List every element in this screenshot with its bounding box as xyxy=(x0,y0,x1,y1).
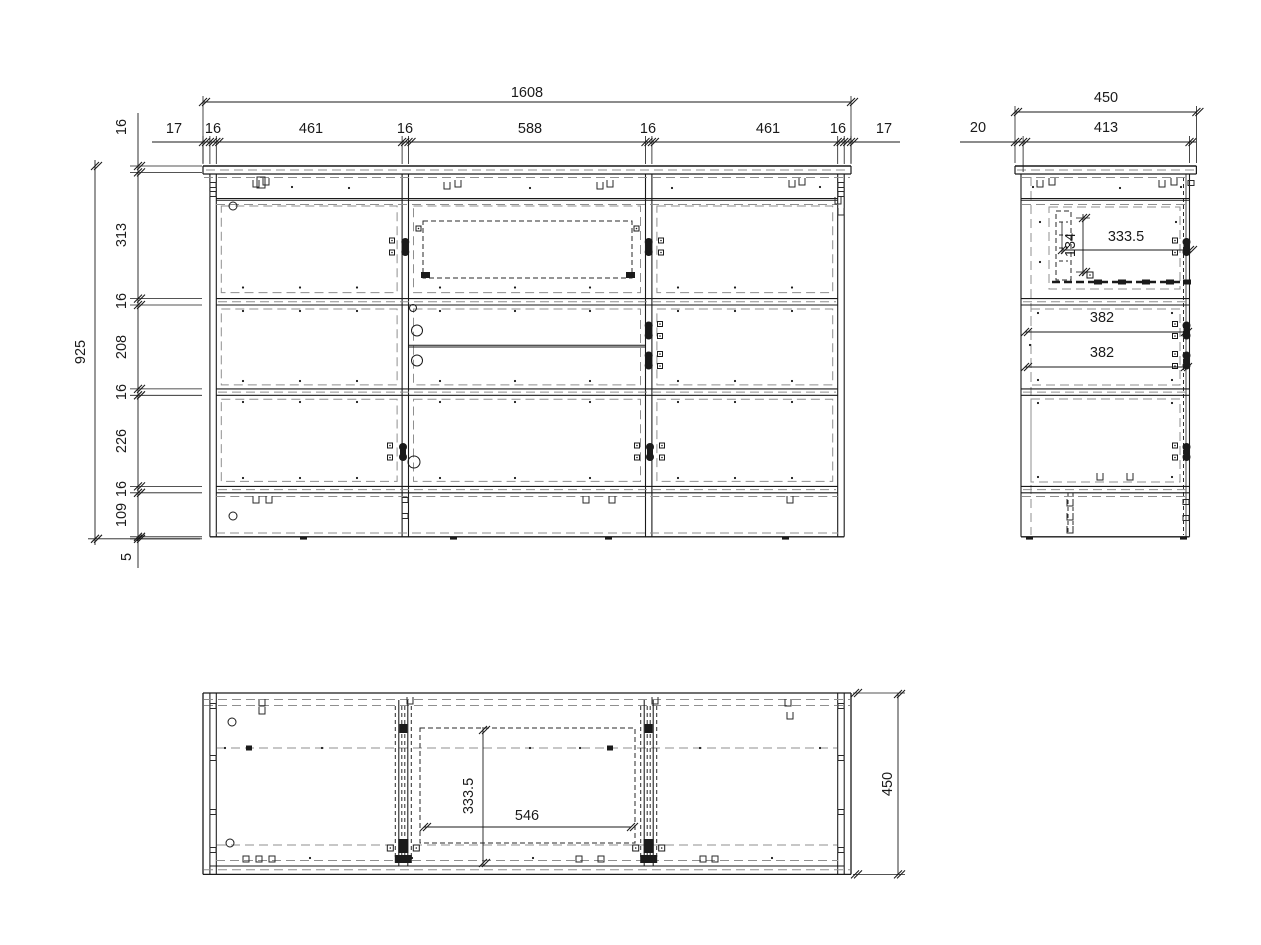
door-outline xyxy=(221,206,397,293)
dim-label-divider-left: 16 xyxy=(397,121,413,137)
fitting-dot xyxy=(391,252,393,254)
fitting-dot xyxy=(390,847,392,849)
dowel-dot xyxy=(299,310,301,312)
dowel-dot xyxy=(514,380,516,382)
runner-block xyxy=(246,746,252,751)
hinge-icon xyxy=(635,443,665,461)
clip-icon xyxy=(607,180,613,187)
cam-icon xyxy=(402,514,408,519)
dowel-dot xyxy=(309,857,311,859)
door-outline xyxy=(1031,399,1180,482)
hinge-cup xyxy=(401,248,409,256)
front-fitting xyxy=(243,856,249,862)
hinge-cup xyxy=(399,443,407,451)
hinge-cup xyxy=(1183,322,1191,330)
hardware xyxy=(421,272,430,278)
hinge-cup xyxy=(401,238,409,246)
dowel-dot xyxy=(529,187,531,189)
dowel-dot xyxy=(771,857,773,859)
door-outline xyxy=(414,399,641,481)
foot xyxy=(782,537,789,540)
hinge-cup xyxy=(645,332,653,340)
clip-icon xyxy=(597,182,603,189)
dowel-dot xyxy=(589,286,591,288)
dowel-dot xyxy=(699,747,701,749)
door-outline xyxy=(221,399,397,481)
dim-label-overall-depth: 450 xyxy=(1094,90,1118,106)
dim-label-row3-height: 226 xyxy=(114,429,130,453)
cam-icon xyxy=(210,848,216,853)
dowel-dot xyxy=(1171,312,1173,314)
hinge-icon xyxy=(645,238,664,256)
dowel-dot xyxy=(439,401,441,403)
clip-icon xyxy=(787,496,793,503)
clip-icon xyxy=(799,178,805,185)
dowel-dot xyxy=(589,380,591,382)
dim-label-bay-left: 461 xyxy=(299,121,323,137)
fitting-dot xyxy=(661,847,663,849)
dim-label-drawer-depth: 333.5 xyxy=(461,778,477,814)
fitting-dot xyxy=(635,847,637,849)
fitting-dot xyxy=(1089,274,1091,276)
dim-label-panel-right: 16 xyxy=(830,121,846,137)
hinge-cup xyxy=(645,352,653,360)
front-fitting xyxy=(256,856,262,862)
clip-icon xyxy=(266,496,272,503)
clip-icon xyxy=(838,208,844,215)
door-outline xyxy=(657,206,833,293)
clip-icon xyxy=(1097,473,1103,480)
cam-icon xyxy=(210,192,216,197)
hinge-icon xyxy=(645,352,663,370)
inner-drawer-outline xyxy=(420,728,635,843)
dowel-dot xyxy=(1037,379,1039,381)
bottom-view xyxy=(203,693,851,874)
clip-icon xyxy=(1049,178,1055,185)
hinge-cup xyxy=(1183,352,1191,360)
front-view xyxy=(203,166,851,540)
dim-label-plinth-height: 109 xyxy=(114,503,130,527)
dowel-dot xyxy=(529,747,531,749)
clip-icon xyxy=(787,712,793,719)
hinge-icon xyxy=(1173,443,1191,461)
dowel-dot xyxy=(242,310,244,312)
hinge-plate xyxy=(640,855,657,863)
dim-label-runner-bottom: 382 xyxy=(1090,345,1114,361)
dowel-dot xyxy=(299,286,301,288)
dowel-dot xyxy=(356,477,358,479)
clip-icon xyxy=(1127,473,1133,480)
hinge-plate xyxy=(395,855,412,863)
dowel-dot xyxy=(1029,344,1031,346)
fitting-dot xyxy=(636,228,638,230)
fitting-dot xyxy=(660,240,662,242)
fitting-dot xyxy=(661,457,663,459)
door-outline xyxy=(221,309,397,385)
dowel-dot xyxy=(677,401,679,403)
knob-circle xyxy=(228,718,236,726)
clip-icon xyxy=(1037,180,1043,187)
cam-icon xyxy=(210,756,216,761)
fitting-dot xyxy=(1174,445,1176,447)
dim-label-overall-depth: 450 xyxy=(880,772,896,796)
dowel-dot xyxy=(299,401,301,403)
clip-icon xyxy=(263,178,269,185)
dowel-dot xyxy=(677,477,679,479)
cad-drawing: 1608171646116588164611617169253131620816… xyxy=(0,0,1261,945)
fitting-dot xyxy=(661,445,663,447)
dowel-dot xyxy=(356,286,358,288)
dim-label-divider-right: 16 xyxy=(640,121,656,137)
hinge-icon xyxy=(390,238,410,256)
dowel-dot xyxy=(589,477,591,479)
hinge-icon xyxy=(1173,322,1191,340)
fitting-dot xyxy=(636,445,638,447)
dim-label-body-depth: 413 xyxy=(1094,120,1118,136)
clip-icon xyxy=(1171,178,1177,185)
cam-icon xyxy=(402,498,408,503)
dowel-dot xyxy=(1037,476,1039,478)
hardware xyxy=(626,272,635,278)
hinge-icon xyxy=(1173,238,1191,256)
runner-block xyxy=(1094,280,1102,285)
dowel-dot xyxy=(532,857,534,859)
door-outline xyxy=(657,399,833,481)
clip-icon xyxy=(455,180,461,187)
dim-label-overall-height: 925 xyxy=(73,340,89,364)
dowel-dot xyxy=(589,401,591,403)
dim-label-top-thickness: 16 xyxy=(114,119,130,135)
fitting-dot xyxy=(1174,252,1176,254)
dowel-dot xyxy=(1175,221,1177,223)
hinge-icon xyxy=(645,322,663,340)
dowel-dot xyxy=(242,477,244,479)
dowel-dot xyxy=(439,477,441,479)
dowel-dot xyxy=(791,380,793,382)
foot xyxy=(450,537,457,540)
dowel-dot xyxy=(677,310,679,312)
fitting-dot xyxy=(659,365,661,367)
fitting-block xyxy=(645,724,653,733)
fitting-dot xyxy=(389,457,391,459)
dowel-dot xyxy=(411,857,413,859)
cam-icon xyxy=(1188,181,1194,186)
fitting-dot xyxy=(1174,323,1176,325)
dowel-dot xyxy=(242,401,244,403)
hinge-cup xyxy=(645,248,653,256)
clip-icon xyxy=(259,707,265,714)
runner-block xyxy=(1118,280,1126,285)
dowel-dot xyxy=(579,747,581,749)
fitting-dot xyxy=(659,323,661,325)
fitting-dot xyxy=(1174,335,1176,337)
fitting-dot xyxy=(1174,240,1176,242)
clip-icon xyxy=(253,496,259,503)
dowel-dot xyxy=(791,477,793,479)
dowel-dot xyxy=(1119,187,1121,189)
hinge-cup xyxy=(399,453,407,461)
dowel-dot xyxy=(514,310,516,312)
dowel-dot xyxy=(439,380,441,382)
dim-label-row1-height: 313 xyxy=(114,223,130,247)
dim-label-panel-left: 16 xyxy=(205,121,221,137)
front-fitting xyxy=(598,856,604,862)
hinge-cup xyxy=(646,443,654,451)
dowel-dot xyxy=(1171,476,1173,478)
dim-label-bay-right: 461 xyxy=(756,121,780,137)
cam-icon xyxy=(838,192,844,197)
hinge-cup xyxy=(1183,238,1191,246)
cam-icon xyxy=(210,810,216,815)
runner-block xyxy=(1166,280,1174,285)
dowel-dot xyxy=(1039,261,1041,263)
dowel-dot xyxy=(819,747,821,749)
fitting-dot xyxy=(391,240,393,242)
front-fitting xyxy=(576,856,582,862)
clip-icon xyxy=(785,699,791,706)
dowel-dot xyxy=(242,380,244,382)
dowel-dot xyxy=(1037,402,1039,404)
dowel-dot xyxy=(589,310,591,312)
dowel-dot xyxy=(734,310,736,312)
dowel-dot xyxy=(356,310,358,312)
fitting-dot xyxy=(659,353,661,355)
dim-label-overhang-right: 17 xyxy=(876,121,892,137)
dowel-dot xyxy=(356,380,358,382)
dim-label-runner-top: 382 xyxy=(1090,310,1114,326)
hinge-block xyxy=(644,839,654,853)
dowel-dot xyxy=(734,401,736,403)
dim-label-bay-middle: 588 xyxy=(518,121,542,137)
fitting-dot xyxy=(418,228,420,230)
clip-icon xyxy=(1159,180,1165,187)
dowel-dot xyxy=(514,401,516,403)
dowel-dot xyxy=(514,286,516,288)
dowel-dot xyxy=(299,477,301,479)
dim-label-overall-width: 1608 xyxy=(511,85,543,101)
dim-label-shelf2: 16 xyxy=(114,384,130,400)
clip-icon xyxy=(583,496,589,503)
dowel-dot xyxy=(819,186,821,188)
dowel-dot xyxy=(1180,186,1182,188)
door-outline xyxy=(657,309,833,385)
hinge-block xyxy=(398,839,408,853)
dowel-dot xyxy=(439,310,441,312)
dim-label-overhang-left: 17 xyxy=(166,121,182,137)
clip-icon xyxy=(609,496,615,503)
hinge-cup xyxy=(1183,443,1191,451)
dowel-dot xyxy=(677,286,679,288)
foot xyxy=(1180,537,1187,540)
front-fitting xyxy=(269,856,275,862)
runner-block xyxy=(1183,280,1191,285)
fitting-dot xyxy=(1174,353,1176,355)
dim-label-drawer-height: 134 xyxy=(1063,233,1079,257)
dowel-dot xyxy=(321,747,323,749)
runner-block xyxy=(607,746,613,751)
dowel-dot xyxy=(439,286,441,288)
dim-label-floor-gap: 5 xyxy=(119,553,135,561)
hinge-cup xyxy=(645,322,653,330)
dim-label-drawer-depth: 333.5 xyxy=(1108,229,1144,245)
cam-icon xyxy=(838,756,844,761)
dim-label-shelf1: 16 xyxy=(114,293,130,309)
dim-label-drawer-width: 546 xyxy=(515,808,539,824)
hinge-cup xyxy=(645,238,653,246)
dim-label-row2-height: 208 xyxy=(114,335,130,359)
foot xyxy=(300,537,307,540)
dowel-dot xyxy=(677,380,679,382)
dowel-dot xyxy=(791,310,793,312)
cam-icon xyxy=(838,183,844,188)
hinge-cup xyxy=(1183,453,1191,461)
clip-icon xyxy=(253,180,259,187)
inner-drawer-outline xyxy=(423,221,632,278)
clip-icon xyxy=(444,182,450,189)
dim-label-front-offset: 20 xyxy=(970,120,986,136)
dowel-dot xyxy=(734,477,736,479)
dowel-dot xyxy=(242,286,244,288)
front-fitting xyxy=(712,856,718,862)
clip-icon xyxy=(259,699,265,706)
lock-fitting xyxy=(257,177,265,188)
dowel-dot xyxy=(791,401,793,403)
knob-circle xyxy=(226,839,234,847)
fitting-dot xyxy=(416,847,418,849)
door-outline xyxy=(414,206,641,293)
foot xyxy=(1026,537,1033,540)
clip-icon xyxy=(789,180,795,187)
fitting-dot xyxy=(659,335,661,337)
cam-icon xyxy=(838,810,844,815)
dim-label-bottom-thickness: 16 xyxy=(114,481,130,497)
dowel-dot xyxy=(1037,312,1039,314)
runner-block xyxy=(1142,280,1150,285)
knob-circle xyxy=(412,325,423,336)
front-fitting xyxy=(700,856,706,862)
fitting-dot xyxy=(1174,457,1176,459)
dowel-dot xyxy=(1039,221,1041,223)
dowel-dot xyxy=(291,186,293,188)
fitting-dot xyxy=(660,252,662,254)
dowel-dot xyxy=(356,401,358,403)
dowel-dot xyxy=(224,747,226,749)
dowel-dot xyxy=(1171,402,1173,404)
dowel-dot xyxy=(1032,186,1034,188)
drawing-sheet: 1608171646116588164611617169253131620816… xyxy=(0,0,1261,945)
dowel-dot xyxy=(734,286,736,288)
cam-icon xyxy=(210,183,216,188)
dowel-dot xyxy=(299,380,301,382)
hinge-cup xyxy=(1183,248,1191,256)
dowel-dot xyxy=(514,477,516,479)
fitting-dot xyxy=(389,445,391,447)
hinge-cup xyxy=(645,362,653,370)
hinge-cup xyxy=(646,453,654,461)
dowel-dot xyxy=(734,380,736,382)
dowel-dot xyxy=(671,187,673,189)
foot xyxy=(605,537,612,540)
cam-icon xyxy=(838,848,844,853)
fitting-dot xyxy=(636,457,638,459)
knob-circle xyxy=(229,512,237,520)
dowel-dot xyxy=(791,286,793,288)
dowel-dot xyxy=(651,857,653,859)
dowel-dot xyxy=(1171,379,1173,381)
fitting-block xyxy=(399,724,407,733)
dowel-dot xyxy=(348,187,350,189)
